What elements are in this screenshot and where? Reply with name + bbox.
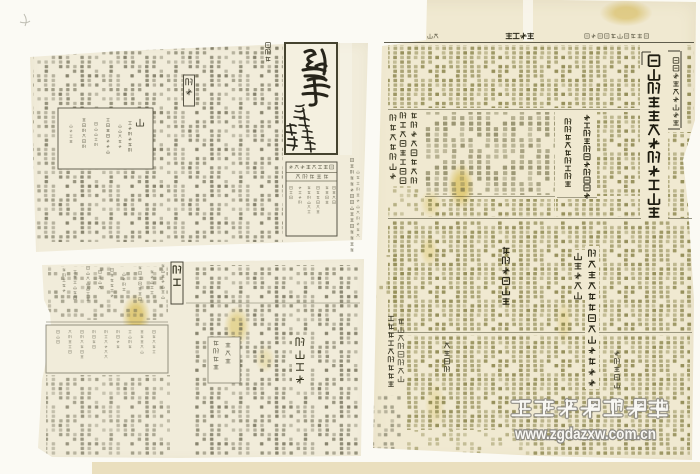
svg-text:www.zgdazxw.com.cn: www.zgdazxw.com.cn [514,426,656,443]
